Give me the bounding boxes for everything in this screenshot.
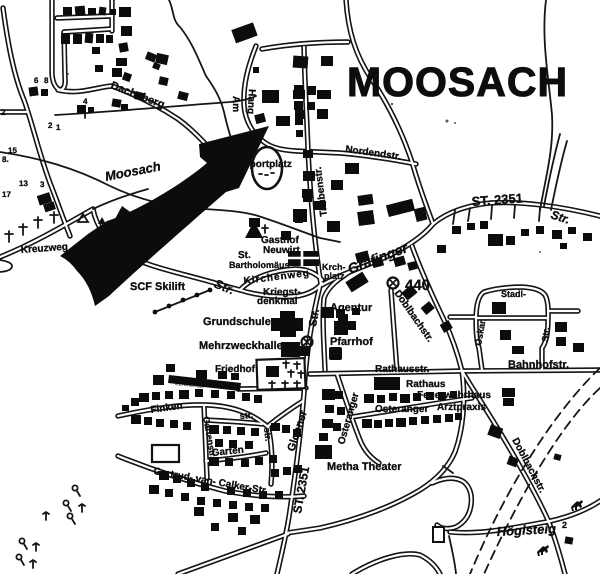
svg-text:Arztpraxis: Arztpraxis: [437, 402, 486, 413]
svg-text:15: 15: [8, 146, 17, 155]
svg-text:Stadl-: Stadl-: [501, 289, 526, 299]
svg-text:P: P: [332, 349, 339, 361]
svg-text:Metha Theater: Metha Theater: [327, 461, 402, 473]
svg-text:SCF Skilift: SCF Skilift: [130, 281, 185, 293]
svg-text:Bartholomäus: Bartholomäus: [229, 260, 290, 270]
svg-text:Sportplatz: Sportplatz: [243, 159, 292, 170]
svg-text:Str.: Str.: [540, 327, 551, 342]
svg-text:Höglsteig: Höglsteig: [496, 521, 556, 539]
svg-text:Osteranger: Osteranger: [375, 404, 428, 415]
svg-text:Hang: Hang: [245, 89, 257, 115]
svg-text:Bahnhofstr.: Bahnhofstr.: [508, 359, 569, 371]
svg-text:Mehrzweckhalle: Mehrzweckhalle: [199, 340, 283, 352]
svg-text:Friedhof: Friedhof: [215, 364, 256, 375]
svg-text:Am: Am: [230, 96, 241, 112]
svg-text:2: 2: [1, 108, 6, 117]
svg-text:13: 13: [19, 179, 28, 188]
svg-text:2: 2: [48, 121, 53, 130]
svg-text:Pfarrhof: Pfarrhof: [330, 336, 373, 348]
svg-text:Agentur: Agentur: [330, 302, 373, 314]
svg-text:6: 6: [34, 76, 39, 85]
svg-text:str.: str.: [239, 410, 253, 421]
svg-text:3: 3: [40, 180, 45, 189]
svg-text:Rathausstr.: Rathausstr.: [375, 364, 430, 375]
svg-text:Grundschule: Grundschule: [203, 316, 271, 328]
svg-text:4: 4: [83, 97, 88, 106]
svg-text:8: 8: [44, 76, 49, 85]
svg-text:440: 440: [405, 277, 430, 294]
svg-text:2: 2: [562, 520, 567, 530]
svg-text:1: 1: [56, 123, 61, 132]
svg-text:8.: 8.: [2, 155, 9, 164]
svg-text:MOOSACH: MOOSACH: [347, 59, 568, 105]
svg-text:Neuwirt: Neuwirt: [263, 245, 300, 256]
svg-text:Feuerwehrhaus: Feuerwehrhaus: [417, 390, 491, 401]
svg-text:Rathaus: Rathaus: [406, 379, 446, 390]
svg-text:denkmal: denkmal: [257, 296, 298, 307]
svg-text:platz: platz: [324, 271, 345, 281]
svg-text:str.: str.: [262, 427, 273, 441]
svg-text:17: 17: [2, 190, 11, 199]
